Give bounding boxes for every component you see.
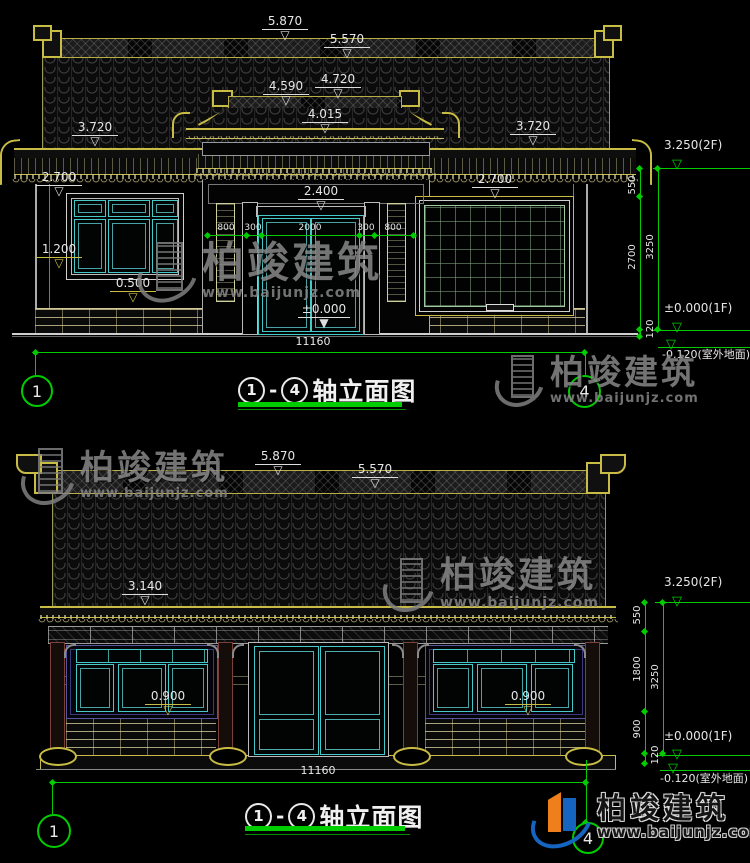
chain-1800: 1800 xyxy=(633,649,643,689)
chain-550: 550 xyxy=(633,595,643,635)
eave-fringe xyxy=(38,619,618,625)
dim-300-right: 300 xyxy=(351,223,381,233)
chain-line-2f xyxy=(655,602,750,603)
watermark-name: 柏竣建筑 xyxy=(440,558,599,594)
axis-bubble-1: 1 xyxy=(37,814,71,848)
level-4015: 4.015 xyxy=(302,108,348,135)
gate-fringe-lower xyxy=(194,173,436,180)
title-dash: - xyxy=(269,378,277,402)
watermark-middle: 柏竣建筑 www.baijunjz.com xyxy=(386,558,599,610)
watermark-url: www.baijunjz.com xyxy=(440,596,599,610)
total-width-dim-line xyxy=(35,352,585,353)
right-bay-panel-1 xyxy=(433,664,473,712)
column-4 xyxy=(585,642,600,757)
eave-corner-upturn-left xyxy=(0,139,20,185)
column-base-drum xyxy=(565,747,603,766)
level-0000: ±0.000 xyxy=(298,303,350,330)
axis-line-left xyxy=(52,782,53,814)
door-leaf-right xyxy=(320,646,385,755)
level-2400: 2.400 xyxy=(298,185,344,212)
watermark-right: 柏竣建筑 www.baijunjz.com xyxy=(498,355,699,405)
title-axis-start: 1 xyxy=(238,377,265,404)
chain-3250: 3250 xyxy=(646,227,656,267)
left-window-top-panel-1 xyxy=(74,200,106,217)
brand-logo-color: 柏竣建筑 www.baijunjz.com xyxy=(533,790,750,844)
dim-node xyxy=(654,165,661,172)
watermark-logo-icon xyxy=(498,355,542,405)
level-0900-left: 0.900 xyxy=(145,690,191,717)
dim-node xyxy=(49,779,56,786)
brand-url: www.baijunjz.com xyxy=(597,825,750,840)
dim-300-left: 300 xyxy=(238,223,268,233)
chain-floor: ±0.000(1F) xyxy=(664,302,732,314)
chain-tri xyxy=(672,153,682,172)
level-5870: 5.870 xyxy=(262,15,308,42)
door-leaf-lower-panel xyxy=(259,719,314,750)
corner-bracket xyxy=(232,644,244,658)
chain-120: 120 xyxy=(651,735,661,775)
axis-bubble-1: 1 xyxy=(21,375,53,407)
right-window-frame xyxy=(415,196,574,316)
gate-dim-line xyxy=(207,235,413,236)
watermark-url: www.baijunjz.com xyxy=(550,392,699,405)
left-window-top-panel-2 xyxy=(108,200,150,217)
watermark-top: 柏竣建筑 www.baijunjz.com xyxy=(24,448,229,502)
column-2 xyxy=(218,642,233,757)
chain-550: 550 xyxy=(628,165,638,205)
watermark-logo-icon xyxy=(24,448,72,502)
watermark-name: 柏竣建筑 xyxy=(202,242,382,284)
left-window-top-panel-3 xyxy=(152,200,178,217)
chain-3250: 3250 xyxy=(651,657,661,697)
brand-logo-icon xyxy=(533,790,589,844)
drawing-bottom-elevation: 5.870 5.570 3.140 0.900 0.900 11160 1 4 … xyxy=(0,430,750,863)
total-width-dim-line xyxy=(52,782,586,783)
right-window-handle xyxy=(486,304,514,311)
chain-120: 120 xyxy=(646,309,656,349)
ridge-ornament-right-head xyxy=(603,25,622,41)
dim-800-left: 800 xyxy=(211,223,241,233)
right-bay-transom xyxy=(433,649,575,663)
chain-line-floor xyxy=(655,755,750,756)
right-window-grid xyxy=(424,205,565,307)
gate-mid-band xyxy=(202,142,430,156)
gate-ridge-ornament-right xyxy=(399,90,420,107)
watermark-logo-icon xyxy=(386,558,432,610)
chain-2700: 2700 xyxy=(628,237,638,277)
column-3 xyxy=(403,642,418,757)
title-axis-end: 4 xyxy=(281,377,308,404)
watermark-name: 柏竣建筑 xyxy=(80,451,229,485)
title-underline xyxy=(238,402,402,407)
dim-node xyxy=(641,760,648,767)
gate-lower-rafters xyxy=(198,154,432,169)
dim-node xyxy=(32,349,39,356)
chain-ground: -0.120(室外地面) xyxy=(660,773,748,785)
title-dash: - xyxy=(276,804,284,828)
level-2700-right: 2.700 xyxy=(472,173,518,200)
chain-floor: ±0.000(1F) xyxy=(664,730,732,742)
chain-900: 900 xyxy=(633,709,643,749)
door-leaf-lower-panel xyxy=(325,719,380,750)
gate-pilaster-right xyxy=(387,203,406,302)
level-4590: 4.590 xyxy=(263,80,309,107)
dim-node xyxy=(636,333,643,340)
door-leaf-upper-lattice xyxy=(259,651,314,715)
left-bay-panel-1 xyxy=(76,664,114,712)
level-1200: 1.200 xyxy=(36,243,82,270)
watermark-logo-icon xyxy=(140,242,194,300)
level-2700-left: 2.700 xyxy=(36,171,82,198)
chain-vline-inner xyxy=(645,602,646,763)
dim-node xyxy=(582,779,589,786)
title-underline-thin xyxy=(245,834,410,835)
watermark-center: 柏竣建筑 www.baijunjz.com xyxy=(140,242,382,300)
ridge-ornament-left-head xyxy=(33,25,52,41)
dim-2000: 2000 xyxy=(293,223,327,233)
watermark-url: www.baijunjz.com xyxy=(80,487,229,500)
column-1 xyxy=(50,642,65,757)
brand-name: 柏竣建筑 xyxy=(597,794,750,823)
chain-3250-2f: 3.250(2F) xyxy=(664,139,722,151)
watermark-name: 柏竣建筑 xyxy=(550,356,699,390)
level-5870: 5.870 xyxy=(255,450,301,477)
chain-vline-total xyxy=(658,168,659,331)
gate-eave-upturn-right xyxy=(442,112,460,138)
level-3720-right: 3.720 xyxy=(510,120,556,147)
right-bay-brick-sill xyxy=(425,717,585,756)
corner-bracket xyxy=(417,644,429,658)
dim-node xyxy=(659,599,666,606)
column-base-drum xyxy=(393,747,431,766)
watermark-url: www.baijunjz.com xyxy=(202,286,382,300)
level-0900-right: 0.900 xyxy=(505,690,551,717)
cad-sheet: 800 300 2000 300 800 5.870 5.570 4.720 4… xyxy=(0,0,750,863)
level-3140: 3.140 xyxy=(122,580,168,607)
corner-bracket xyxy=(64,644,76,658)
left-bay-brick-sill xyxy=(66,717,216,756)
total-width-text: 11160 xyxy=(288,766,348,776)
level-3720-left: 3.720 xyxy=(72,121,118,148)
level-4720: 4.720 xyxy=(315,73,361,100)
chain-line-floor xyxy=(653,330,750,331)
chain-3250-2f: 3.250(2F) xyxy=(664,576,722,588)
level-5570: 5.570 xyxy=(324,33,370,60)
ridge-ornament-right-curl xyxy=(600,454,626,474)
door-leaf-left xyxy=(254,646,319,755)
drawing-top-elevation: 800 300 2000 300 800 5.870 5.570 4.720 4… xyxy=(0,0,750,430)
chain-line-2f xyxy=(653,168,750,169)
door-leaf-upper-lattice xyxy=(325,651,380,715)
title-underline xyxy=(245,826,405,831)
dim-800-right: 800 xyxy=(378,223,408,233)
dim-node xyxy=(641,750,648,757)
column-base-drum xyxy=(39,747,77,766)
column-base-drum xyxy=(209,747,247,766)
title-underline-thin xyxy=(238,409,406,410)
total-width-text: 11160 xyxy=(283,337,343,347)
level-5570: 5.570 xyxy=(352,463,398,490)
left-bay-transom xyxy=(76,649,208,663)
chain-tri xyxy=(672,590,682,609)
